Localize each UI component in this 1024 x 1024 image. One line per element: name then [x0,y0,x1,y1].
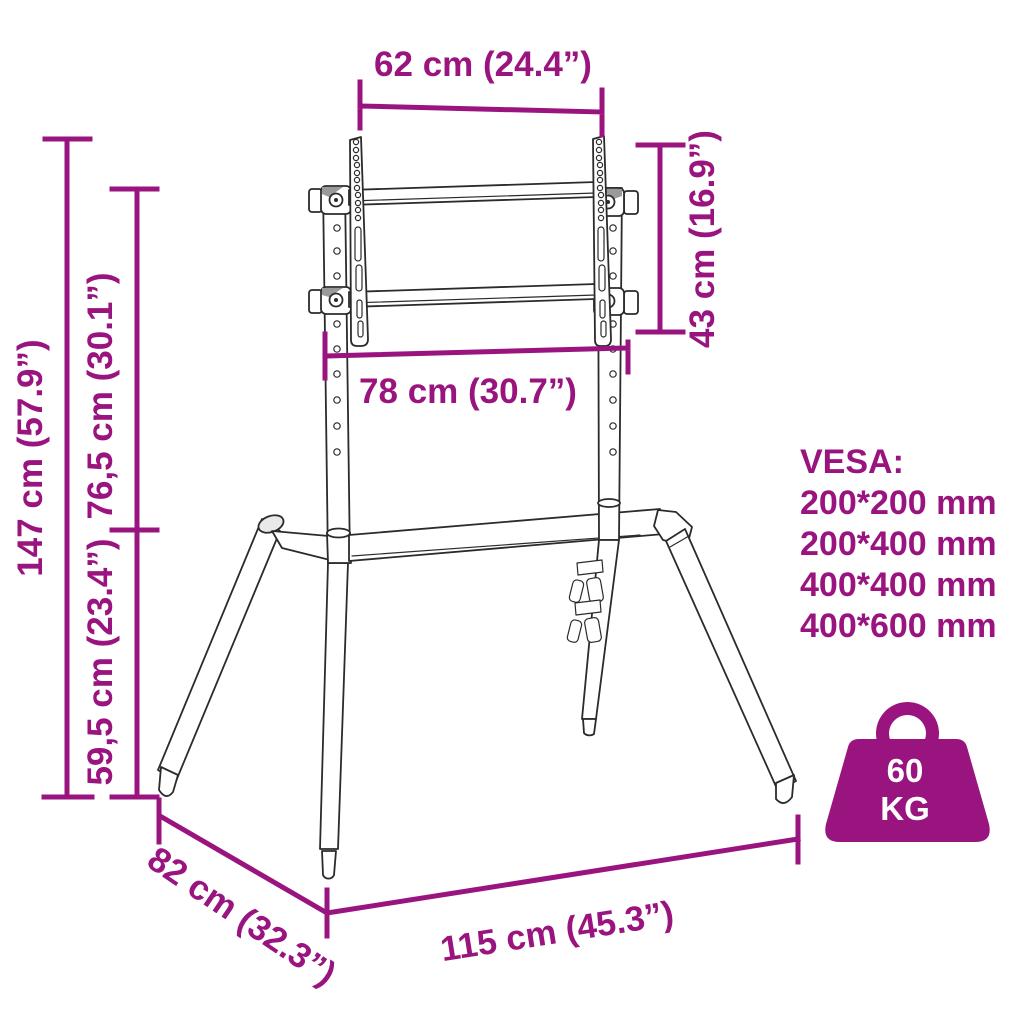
dimension-vesa-height-line [638,145,683,332]
right-collar-rim [598,499,620,507]
dimension-total-height-label: 147 cm (57.9”) [11,339,50,576]
tv-floor-stand-diagram: 62 cm (24.4”) 78 cm (30.7”) 147 cm (57.9… [0,0,1024,1024]
left-collar-rim [327,529,350,538]
weight-handle [883,708,933,742]
vesa-title: VESA: [800,443,904,481]
front-left-center-leg [320,563,348,849]
vesa-size-3: 400*400 mm [800,566,997,604]
dimension-top-width-line [360,82,602,135]
vesa-strip-left [350,137,368,346]
product-dimension-diagram: 62 cm (24.4”) 78 cm (30.7”) 147 cm (57.9… [0,0,1024,1024]
dimension-vesa-height-label: 43 cm (16.9”) [683,130,722,348]
vesa-strip-right [593,136,611,346]
vesa-strip-holes [353,139,606,337]
rear-leg-foot [583,719,596,735]
dimension-top-width-label: 62 cm (24.4”) [374,45,592,84]
weight-unit: KG [880,790,930,827]
bracket-bar-top [349,182,596,205]
dimension-lower-height-label: 59,5 cm (23.4”) [81,538,120,785]
weight-capacity-icon: 60 KG [825,708,989,842]
strap-buckles [566,560,603,643]
dimension-base-width-label: 115 cm (45.3”) [438,894,677,969]
post-holes [334,225,616,455]
left-splayed-leg [158,519,280,781]
dimension-upper-height-label: 76,5 cm (30.1”) [81,272,120,519]
right-splayed-leg [666,529,796,791]
weight-value: 60 [887,752,924,789]
vesa-size-1: 200*200 mm [800,484,997,522]
vesa-size-4: 400*600 mm [800,607,997,645]
bracket-bar-bottom [349,284,596,307]
vesa-size-2: 200*400 mm [800,525,997,563]
vesa-compatibility-list: VESA: 200*200 mm 200*400 mm 400*400 mm 4… [800,443,997,645]
front-center-leg-foot [322,851,336,879]
dimension-bracket-width-label: 78 cm (30.7”) [359,372,577,411]
